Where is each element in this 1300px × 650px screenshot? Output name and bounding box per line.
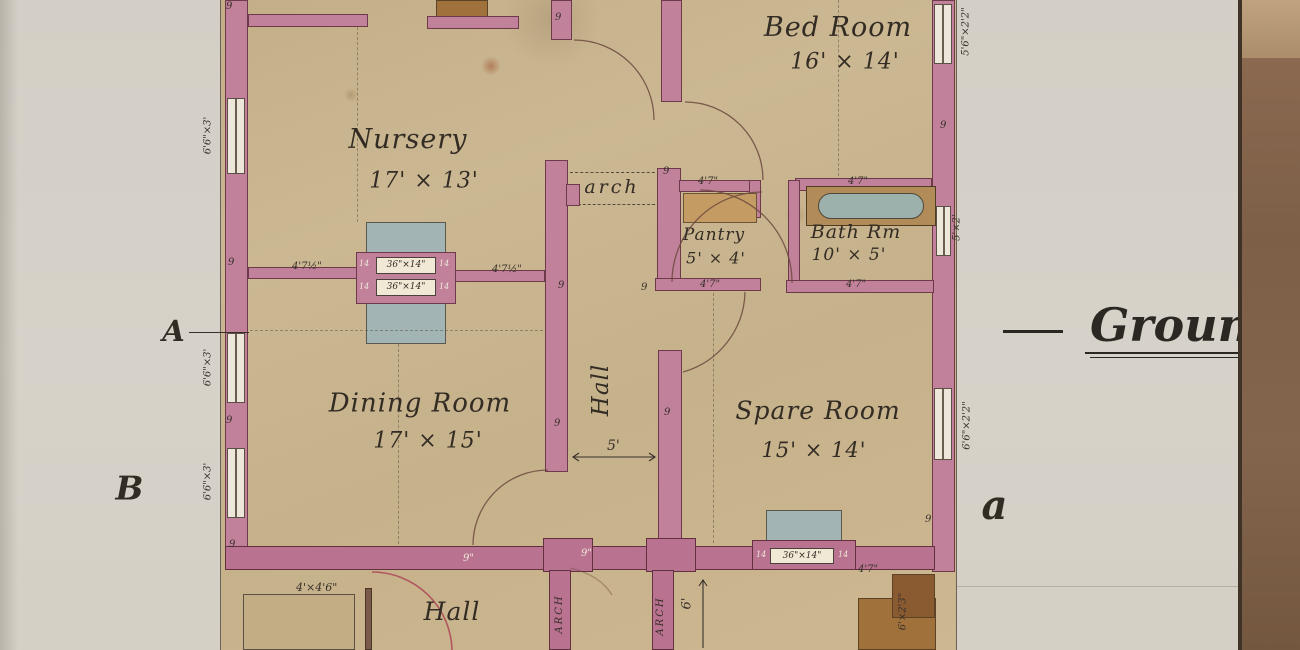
wall-thickness-note: 9 bbox=[226, 1, 232, 12]
wall-length-note: 4'7" bbox=[858, 564, 878, 575]
title-underline-2 bbox=[1090, 357, 1240, 358]
room-label-nursery: Nursery bbox=[349, 126, 468, 154]
room-label-hall: Hall bbox=[589, 364, 613, 416]
wall-thickness-note: 9 bbox=[664, 407, 670, 418]
room-label-entry-hall: Hall bbox=[424, 599, 481, 625]
wall-thickness-note: 9 bbox=[558, 280, 564, 291]
section-letter-B: B bbox=[116, 472, 145, 507]
wall-thickness-note: 9 bbox=[226, 415, 232, 426]
window-right-bath bbox=[936, 206, 951, 256]
steps-size-note: 6'×2'3" bbox=[898, 583, 909, 641]
jamb-note: 14 bbox=[439, 282, 449, 291]
wall-thickness-note: 9 bbox=[554, 418, 560, 429]
section-a-pointer bbox=[189, 332, 249, 333]
window-size-note: 6'6"×3' bbox=[203, 452, 214, 512]
room-label-pantry: Pantry bbox=[683, 227, 745, 245]
room-dims-pantry: 5' × 4' bbox=[686, 251, 746, 268]
construction-line bbox=[713, 293, 714, 543]
wall-bedroom-west bbox=[661, 0, 682, 102]
room-label-dining: Dining Room bbox=[329, 390, 511, 417]
hearth-dining bbox=[366, 302, 446, 344]
room-label-bedroom: Bed Room bbox=[764, 14, 912, 42]
section-letter-A: A bbox=[162, 316, 186, 346]
window-left-2 bbox=[227, 333, 245, 403]
window-size-note: 6'6"×2'2" bbox=[962, 393, 973, 459]
window-size-note: 5'×2' bbox=[952, 203, 963, 253]
paper-crease bbox=[956, 586, 1240, 587]
room-label-bath: Bath Rm bbox=[811, 223, 902, 243]
window-left-3 bbox=[227, 448, 245, 518]
wall-thickness-note: 9 bbox=[925, 514, 931, 525]
arch-dash-top bbox=[570, 172, 660, 173]
wall-outer-right bbox=[932, 0, 955, 572]
section-line-a bbox=[250, 330, 543, 331]
window-right-spare bbox=[934, 388, 952, 460]
jamb-note: 14 bbox=[756, 550, 766, 559]
wall-length-note: 4'7½" bbox=[492, 264, 522, 275]
label-porch-arch-right: ARCH bbox=[656, 596, 667, 635]
wall-thickness-note: 9 bbox=[663, 166, 669, 177]
fireplace-opening-bottom: 36"×14" bbox=[376, 279, 436, 296]
pillar-porch-right bbox=[646, 538, 696, 572]
fireplace-opening-spare: 36"×14" bbox=[770, 548, 834, 564]
wall-bath-west bbox=[788, 180, 800, 291]
wall-thickness-note: 9 bbox=[229, 539, 235, 550]
section-letter-a: a bbox=[982, 485, 1009, 527]
hall-width-note: 5' bbox=[607, 438, 620, 454]
wall-length-note: 4'7" bbox=[698, 176, 718, 187]
porch-step-note: 4'×4'6" bbox=[296, 581, 337, 594]
frame-strip-top bbox=[1242, 0, 1300, 58]
room-dims-bath: 10' × 5' bbox=[812, 247, 887, 265]
photo-left-shadow bbox=[0, 0, 18, 650]
wall-thickness-note: 9 bbox=[555, 12, 561, 23]
wall-thickness-note: 9 bbox=[940, 120, 946, 131]
fireplace-opening-top: 36"×14" bbox=[376, 257, 436, 274]
jamb-note: 14 bbox=[838, 550, 848, 559]
wall-length-note: 4'7" bbox=[848, 176, 868, 187]
wall-arch-bump bbox=[566, 184, 580, 206]
room-dims-bedroom: 16' × 14' bbox=[790, 50, 900, 73]
plan-title-fragment: Groun bbox=[1090, 298, 1251, 352]
room-dims-nursery: 17' × 13' bbox=[369, 169, 479, 192]
wall-thickness-note: 9 bbox=[228, 257, 234, 268]
hearth-spare bbox=[766, 510, 842, 542]
window-size-note: 5'6"×2'2" bbox=[961, 0, 972, 66]
wall-top-mid bbox=[427, 16, 519, 29]
jamb-note: 14 bbox=[359, 282, 369, 291]
porch-steps-outline bbox=[243, 594, 355, 650]
title-dash bbox=[1003, 330, 1063, 333]
frame-strip bbox=[1242, 58, 1300, 650]
six-foot-note: 6' bbox=[680, 589, 695, 619]
wall-entry-hall-west bbox=[365, 588, 372, 650]
jamb-note: 14 bbox=[439, 259, 449, 268]
room-label-spare: Spare Room bbox=[735, 398, 900, 424]
room-dims-spare: 15' × 14' bbox=[762, 439, 867, 461]
wall-thickness-note: 9" bbox=[463, 553, 474, 564]
wall-hall-east bbox=[658, 350, 682, 548]
wall-length-note: 4'7" bbox=[846, 279, 866, 290]
window-right-bedroom bbox=[934, 4, 952, 64]
wall-length-note: 4'7½" bbox=[292, 261, 322, 272]
wall-top-left bbox=[248, 14, 368, 27]
floor-plan-photo: 36"×14" 36"×14" 36"×14" Bed Room 16' bbox=[0, 0, 1300, 650]
bathtub bbox=[818, 193, 924, 219]
wall-pantry-west bbox=[657, 168, 681, 280]
wall-length-note: 4'7" bbox=[700, 279, 720, 290]
arch-dash-bottom bbox=[568, 204, 660, 205]
label-porch-arch-left: ARCH bbox=[555, 594, 566, 633]
wall-thickness-note: 9" bbox=[581, 548, 592, 559]
jamb-note: 14 bbox=[359, 259, 369, 268]
pantry-shelf bbox=[683, 193, 757, 223]
title-underline-1 bbox=[1085, 352, 1243, 354]
room-dims-dining: 17' × 15' bbox=[373, 429, 483, 452]
label-arch: arch bbox=[584, 178, 639, 198]
wall-thickness-note: 9 bbox=[641, 282, 647, 293]
window-size-note: 6'6"×3' bbox=[203, 338, 214, 398]
window-left-1 bbox=[227, 98, 245, 174]
window-size-note: 6'6"×3' bbox=[203, 106, 214, 166]
